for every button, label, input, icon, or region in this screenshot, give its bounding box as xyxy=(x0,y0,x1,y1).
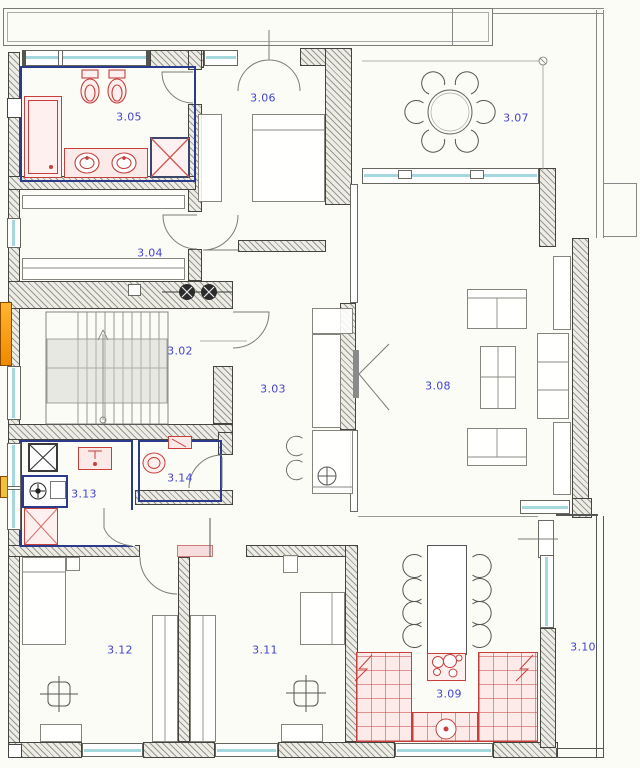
faucet-icon xyxy=(88,451,102,466)
round-dining-table xyxy=(428,90,472,134)
shower-tray-cross-icon xyxy=(25,509,57,544)
room-label-3-14: 3.14 xyxy=(167,472,193,485)
pivot-door-leaf xyxy=(353,350,359,398)
vent-symbol xyxy=(162,284,232,300)
room-label-3-10: 3.10 xyxy=(570,641,596,654)
room-label-3-03: 3.03 xyxy=(260,383,286,396)
room-label-3-05: 3.05 xyxy=(116,111,142,124)
shower-cross-icon xyxy=(151,138,189,177)
room-label-3-08: 3.08 xyxy=(425,380,451,393)
hob-burners-icon xyxy=(433,655,463,678)
hob-icon xyxy=(30,483,46,499)
door-swings xyxy=(104,30,558,594)
room-label-3-07: 3.07 xyxy=(503,112,529,125)
room-label-3-02: 3.02 xyxy=(167,345,193,358)
plan-linework xyxy=(0,0,640,768)
bar-sink-icon xyxy=(318,467,336,485)
terrace-chairs xyxy=(405,68,495,157)
room-label-3-04: 3.04 xyxy=(137,247,163,260)
bar-stools xyxy=(287,436,303,480)
room-label-3-13: 3.13 xyxy=(71,488,97,501)
toilet-icon xyxy=(81,70,126,103)
wc-toilet-icon xyxy=(143,439,186,473)
room-label-3-11: 3.11 xyxy=(252,644,278,657)
tub-drain-icon xyxy=(49,165,53,169)
floor-plan: 3.02 3.03 3.04 3.05 3.06 3.07 3.08 3.09 … xyxy=(0,0,640,768)
room-label-3-09: 3.09 xyxy=(436,688,462,701)
appliance-cross-icon xyxy=(29,444,57,471)
dining-chairs xyxy=(403,555,491,648)
sink-icon xyxy=(75,153,136,173)
room-label-3-12: 3.12 xyxy=(107,644,133,657)
staircase xyxy=(46,312,168,424)
room-label-3-06: 3.06 xyxy=(250,92,276,105)
kitchen-sink-icon xyxy=(436,719,456,739)
desk-chair-icon xyxy=(40,675,326,712)
